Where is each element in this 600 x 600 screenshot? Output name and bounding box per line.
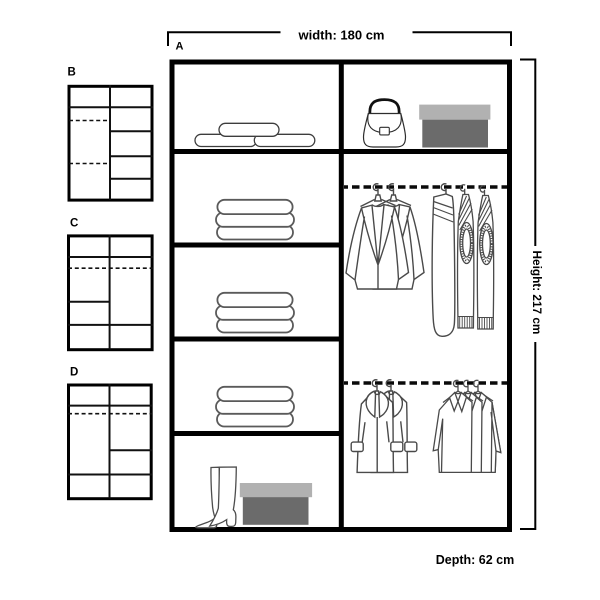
svg-text:A: A (176, 41, 184, 53)
svg-text:C: C (70, 218, 78, 230)
svg-text:width: 180 cm: width: 180 cm (298, 27, 385, 42)
svg-text:B: B (68, 67, 76, 79)
svg-text:Depth: 62 cm: Depth: 62 cm (436, 553, 515, 567)
svg-text:D: D (70, 367, 78, 379)
svg-text:Height: 217 cm: Height: 217 cm (530, 251, 544, 335)
